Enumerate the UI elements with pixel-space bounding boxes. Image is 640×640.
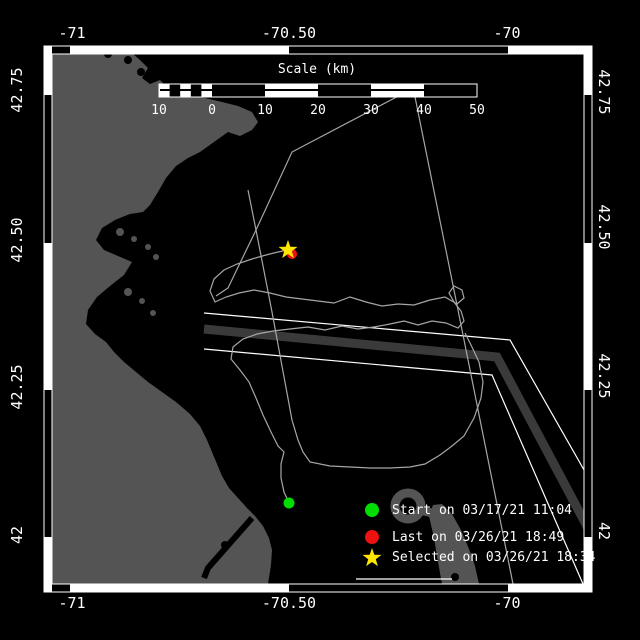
frame-band-black <box>44 390 52 537</box>
scalebar-tick-label: 50 <box>469 103 485 118</box>
scalebar-midline <box>160 89 476 91</box>
scalebar-tick-label: 10 <box>151 103 167 118</box>
water-blob <box>221 541 229 549</box>
frame-band-black <box>289 584 508 592</box>
scalebar-tick-label: 30 <box>363 103 379 118</box>
harbor-island <box>116 228 124 236</box>
frame-band-black <box>584 390 592 537</box>
harbor-island <box>145 244 151 250</box>
scalebar-tick-label: 10 <box>257 103 273 118</box>
harbor-island <box>153 254 159 260</box>
harbor-island <box>124 288 132 296</box>
top-axis-label: -71 <box>58 24 85 42</box>
top-axis-label: -70.50 <box>262 24 316 42</box>
right-axis-label: 42 <box>595 522 613 540</box>
legend-marker-1 <box>365 530 379 544</box>
map-plot: Scale (km) -71-70.50-70-71-70.50-7042.75… <box>0 0 640 640</box>
legend-label-0: Start on 03/17/21 11:04 <box>392 503 572 518</box>
top-axis-label: -70 <box>493 24 520 42</box>
left-axis-label: 42.75 <box>8 67 26 112</box>
harbor-island <box>139 298 145 304</box>
scalebar-title: Scale (km) <box>278 62 356 77</box>
left-axis-label: 42.50 <box>8 217 26 262</box>
frame-band-black <box>44 95 52 243</box>
scalebar-tick-label: 0 <box>208 103 216 118</box>
frame-band-black <box>584 95 592 243</box>
right-axis-label: 42.75 <box>595 69 613 114</box>
water-blob <box>451 573 459 581</box>
bottom-axis-label: -70 <box>493 594 520 612</box>
water-blob <box>137 68 145 76</box>
mainland <box>52 54 272 584</box>
right-axis-label: 42.25 <box>595 353 613 398</box>
legend-label-1: Last on 03/26/21 18:49 <box>392 530 564 545</box>
bottom-axis-label: -70.50 <box>262 594 316 612</box>
legend-marker-2 <box>362 548 381 566</box>
left-axis-label: 42.25 <box>8 364 26 409</box>
drifter-track-line-c <box>248 190 483 468</box>
right-axis-label: 42.50 <box>595 204 613 249</box>
frame-band-black <box>289 46 508 54</box>
scalebar-tick-label: 40 <box>416 103 432 118</box>
harbor-island <box>105 265 111 271</box>
frame-band-black <box>52 46 70 54</box>
water-blob <box>124 56 132 64</box>
frame-band-black <box>52 584 70 592</box>
harbor-island <box>131 236 137 242</box>
start-position-marker <box>284 498 295 509</box>
legend-marker-0 <box>365 503 379 517</box>
harbor-island <box>150 310 156 316</box>
drifter-track-track-main <box>210 250 464 503</box>
left-axis-label: 42 <box>8 526 26 544</box>
bottom-axis-label: -71 <box>58 594 85 612</box>
legend-label-2: Selected on 03/26/21 18:34 <box>392 550 596 565</box>
water-blob <box>149 61 155 67</box>
scalebar-tick-label: 20 <box>310 103 326 118</box>
